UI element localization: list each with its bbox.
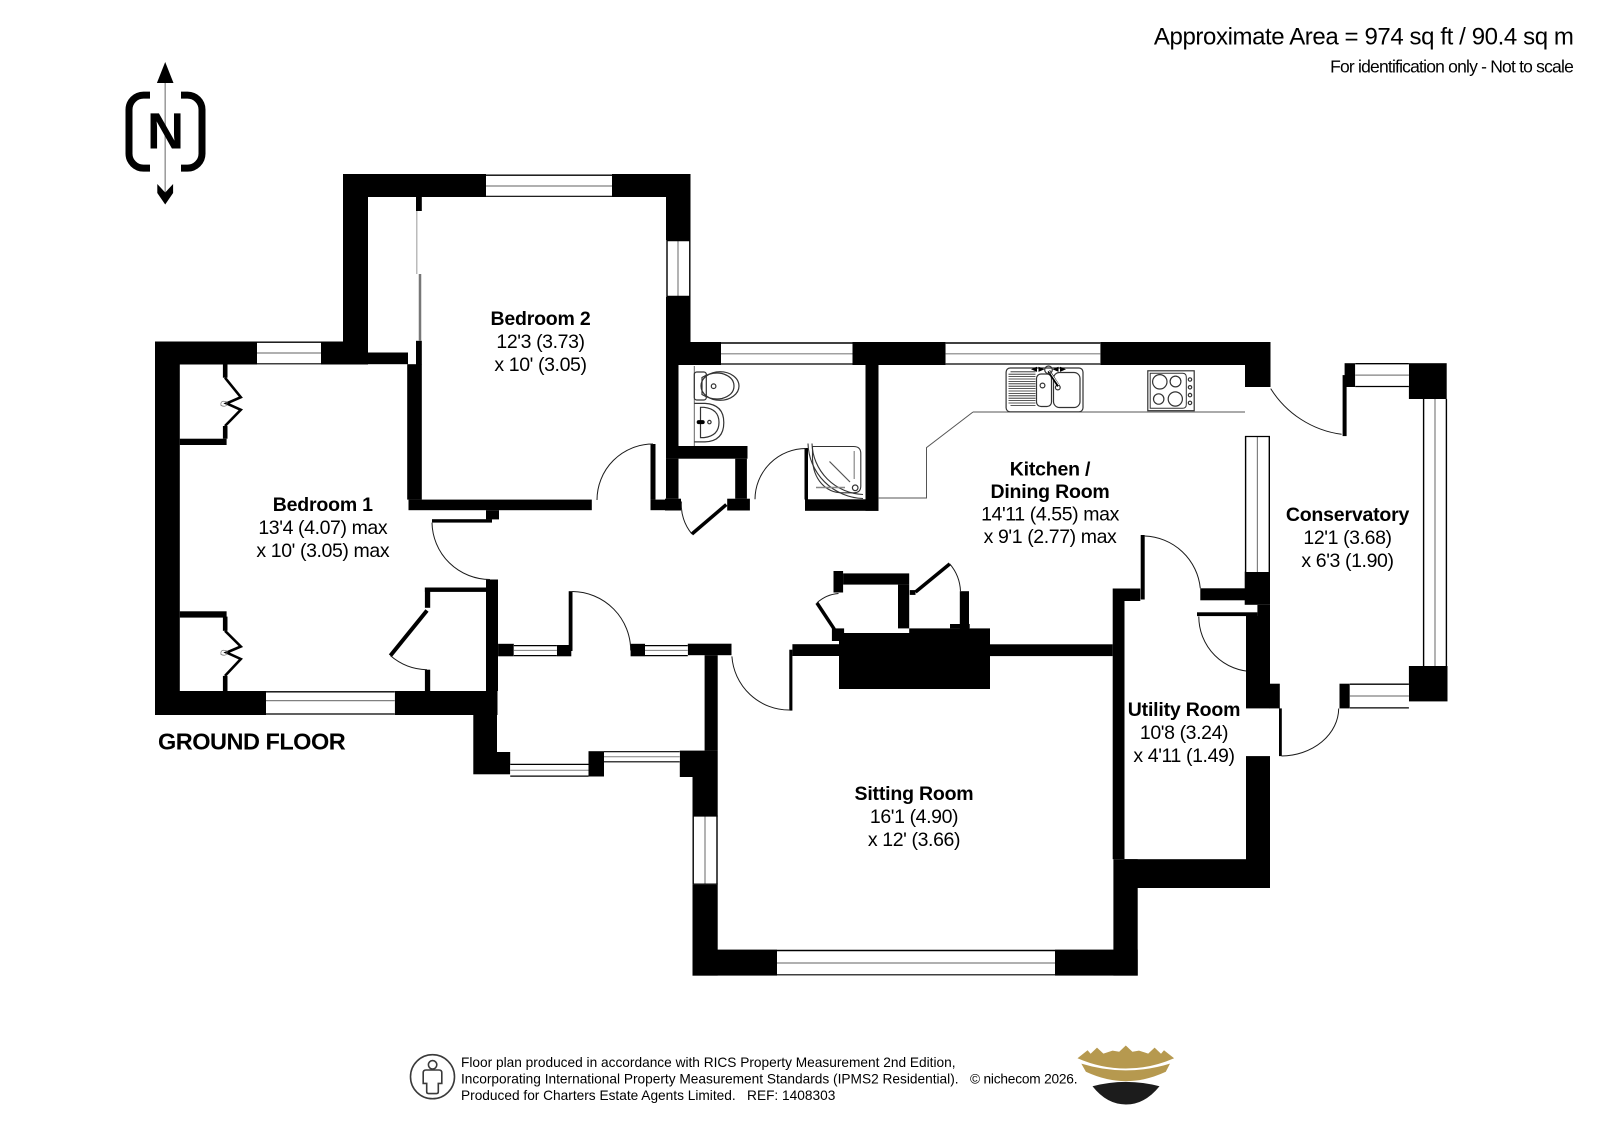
svg-text:Produced for Charters Estate A: Produced for Charters Estate Agents Limi… xyxy=(461,1088,836,1103)
svg-text:Bedroom 2: Bedroom 2 xyxy=(490,308,590,330)
svg-text:Kitchen /: Kitchen / xyxy=(1010,459,1091,481)
svg-text:x 9'1 (2.77) max: x 9'1 (2.77) max xyxy=(984,526,1117,548)
svg-text:x 10' (3.05): x 10' (3.05) xyxy=(494,354,586,376)
svg-text:12'1 (3.68): 12'1 (3.68) xyxy=(1303,527,1391,549)
svg-text:Conservatory: Conservatory xyxy=(1286,504,1410,526)
svg-text:GROUND FLOOR: GROUND FLOOR xyxy=(158,729,346,755)
svg-text:10'8 (3.24): 10'8 (3.24) xyxy=(1140,722,1228,744)
svg-text:14'11 (4.55) max: 14'11 (4.55) max xyxy=(981,504,1120,526)
svg-text:13'4 (4.07) max: 13'4 (4.07) max xyxy=(258,517,388,539)
svg-text:x 10' (3.05) max: x 10' (3.05) max xyxy=(256,540,389,562)
svg-text:Utility Room: Utility Room xyxy=(1128,699,1240,721)
svg-text:x 6'3 (1.90): x 6'3 (1.90) xyxy=(1301,550,1393,572)
svg-text:Approximate Area = 974 sq ft /: Approximate Area = 974 sq ft / 90.4 sq m xyxy=(1154,24,1574,51)
svg-text:Dining Room: Dining Room xyxy=(990,481,1109,503)
svg-text:N: N xyxy=(147,103,184,160)
svg-text:Sitting Room: Sitting Room xyxy=(855,783,974,805)
svg-text:16'1 (4.90): 16'1 (4.90) xyxy=(870,806,958,828)
svg-text:Bedroom 1: Bedroom 1 xyxy=(273,494,373,516)
svg-text:Incorporating International Pr: Incorporating International Property Mea… xyxy=(461,1071,959,1086)
svg-text:© nichecom 2026.: © nichecom 2026. xyxy=(970,1071,1077,1086)
svg-text:Floor plan produced in accorda: Floor plan produced in accordance with R… xyxy=(461,1055,956,1070)
svg-text:12'3 (3.73): 12'3 (3.73) xyxy=(496,331,584,353)
svg-text:x 4'11 (1.49): x 4'11 (1.49) xyxy=(1133,745,1234,767)
svg-text:x 12' (3.66): x 12' (3.66) xyxy=(868,829,960,851)
svg-text:For identification only - Not: For identification only - Not to scale xyxy=(1330,57,1573,77)
